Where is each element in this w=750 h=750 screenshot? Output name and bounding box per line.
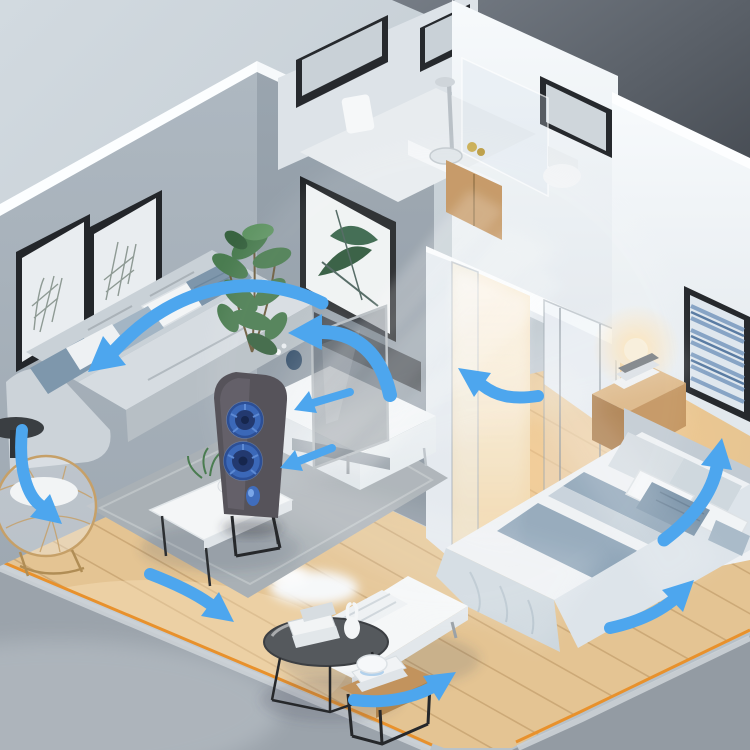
white-bowl [357,655,387,673]
apartment-cutaway-render [0,0,750,750]
fan-grille-bottom [223,441,263,481]
tower-fan [214,372,287,556]
power-indicator [246,486,260,506]
fan-grille-top [226,401,264,439]
scene-canvas [0,0,750,750]
